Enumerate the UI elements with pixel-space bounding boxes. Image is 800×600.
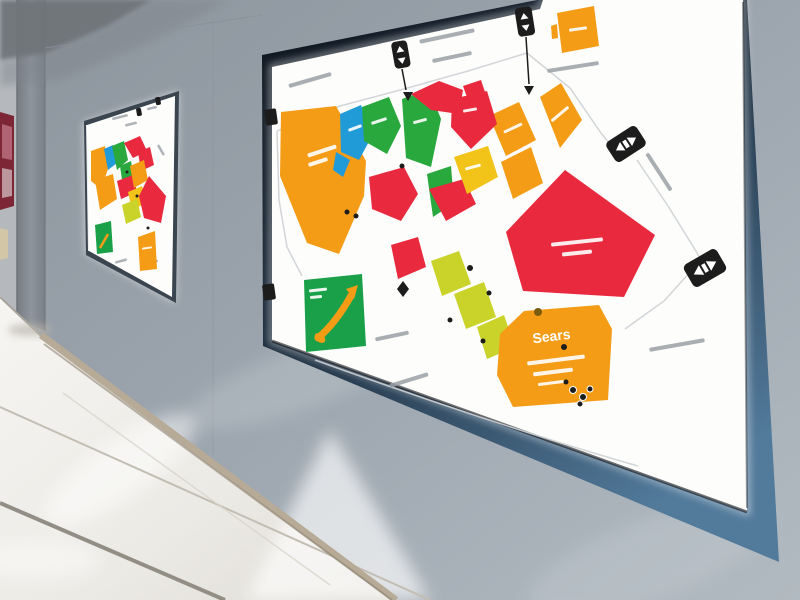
amenity-dot bbox=[580, 394, 587, 401]
amenity-dot bbox=[481, 339, 486, 344]
elevator-icon bbox=[264, 108, 278, 126]
amenity-dot bbox=[136, 195, 139, 198]
amenity-dot bbox=[126, 171, 129, 174]
elevator-icon bbox=[262, 283, 276, 301]
legend-box bbox=[304, 274, 366, 352]
scene-canvas: Sears bbox=[0, 0, 800, 600]
amenity-dot bbox=[487, 291, 492, 296]
amenity-dot bbox=[587, 386, 593, 392]
amenity-dot bbox=[400, 164, 405, 169]
store-block-anchor bbox=[138, 231, 157, 271]
legend-box bbox=[95, 221, 113, 254]
amenity-dot bbox=[354, 214, 359, 219]
amenity-dot bbox=[570, 387, 577, 394]
store-block bbox=[551, 24, 558, 39]
distant-sign bbox=[0, 228, 8, 260]
anchor-badge bbox=[534, 308, 542, 316]
amenity-dot bbox=[561, 344, 567, 350]
wall-poster-image bbox=[2, 124, 12, 160]
amenity-dot bbox=[345, 210, 350, 215]
amenity-dot bbox=[448, 318, 453, 323]
wall-poster-text-area bbox=[2, 168, 12, 198]
amenity-dot bbox=[467, 265, 473, 271]
amenity-dot bbox=[564, 380, 569, 385]
amenity-dot bbox=[577, 401, 583, 407]
hallway-photo: Sears bbox=[0, 0, 800, 600]
amenity-dot bbox=[147, 227, 150, 230]
wall-poster bbox=[0, 112, 14, 210]
